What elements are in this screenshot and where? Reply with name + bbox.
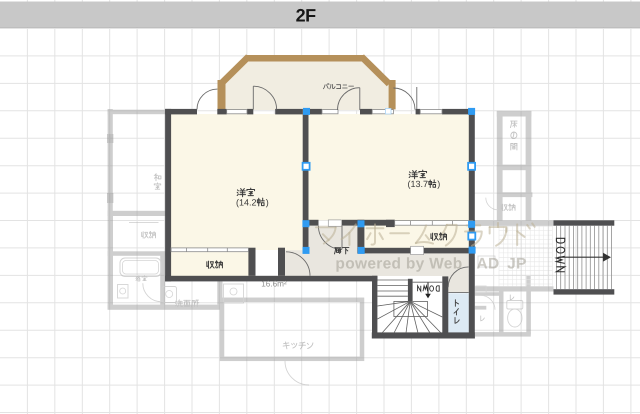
svg-text:16.6m²: 16.6m²	[261, 280, 287, 289]
svg-text:powered by Web: powered by Web	[335, 256, 462, 273]
svg-text:AD JP: AD JP	[477, 256, 527, 273]
svg-text:): )	[266, 197, 269, 207]
svg-text:(13.7: (13.7	[408, 179, 429, 189]
svg-text:2F: 2F	[296, 6, 317, 26]
svg-text:): )	[437, 179, 440, 189]
svg-text:(14.2: (14.2	[236, 197, 257, 207]
